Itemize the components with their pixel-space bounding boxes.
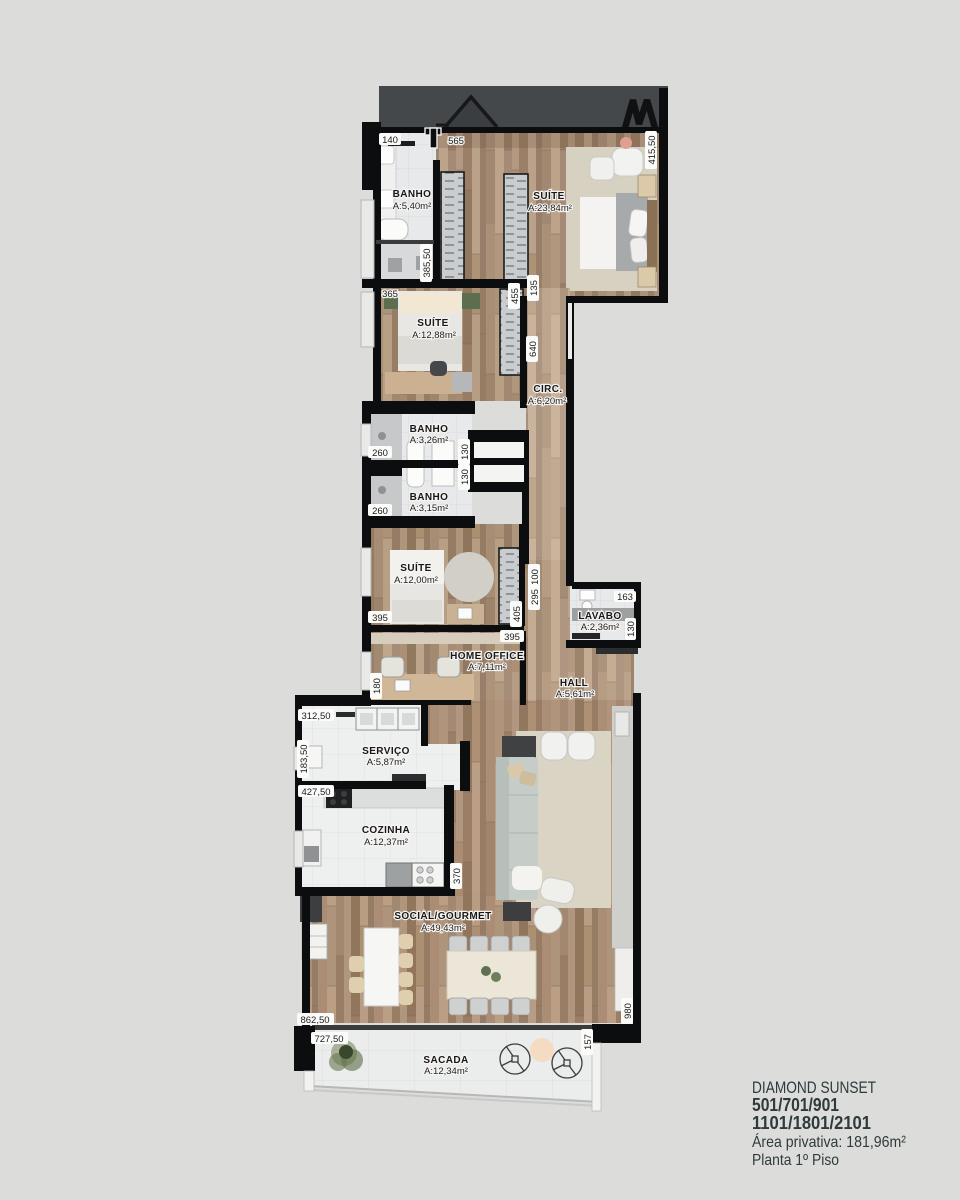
svg-text:385,50: 385,50 <box>422 248 433 277</box>
svg-text:135: 135 <box>529 280 540 296</box>
svg-text:A:12,37m²: A:12,37m² <box>364 837 408 848</box>
svg-text:183,50: 183,50 <box>299 744 310 773</box>
svg-text:SOCIAL/GOURMET: SOCIAL/GOURMET <box>394 911 491 922</box>
svg-text:SACADA: SACADA <box>423 1055 468 1066</box>
svg-text:180: 180 <box>372 678 383 694</box>
svg-text:A:23,84m²: A:23,84m² <box>528 203 572 214</box>
svg-text:370: 370 <box>452 868 463 884</box>
svg-text:HOME OFFICE: HOME OFFICE <box>450 651 524 662</box>
svg-text:862,50: 862,50 <box>300 1015 329 1026</box>
svg-text:A:12,34m²: A:12,34m² <box>424 1066 468 1077</box>
svg-text:A:5,61m²: A:5,61m² <box>556 689 595 700</box>
svg-text:130: 130 <box>626 621 637 637</box>
svg-text:A:3,15m²: A:3,15m² <box>410 503 449 514</box>
svg-text:A:49,43m²: A:49,43m² <box>421 923 465 934</box>
svg-text:LAVABO: LAVABO <box>578 611 621 622</box>
svg-text:260: 260 <box>372 448 388 459</box>
svg-text:A:6,20m²: A:6,20m² <box>528 396 567 407</box>
svg-text:295: 295 <box>530 589 541 605</box>
svg-text:405: 405 <box>512 606 523 622</box>
svg-text:SUÍTE: SUÍTE <box>400 561 431 574</box>
svg-text:BANHO: BANHO <box>410 424 449 435</box>
svg-text:565: 565 <box>448 136 464 147</box>
svg-text:640: 640 <box>528 341 539 357</box>
svg-text:HALL: HALL <box>560 678 588 689</box>
svg-text:395: 395 <box>504 632 520 643</box>
svg-text:980: 980 <box>623 1003 634 1019</box>
svg-text:163: 163 <box>617 592 633 603</box>
svg-text:Área privativa: 181,96m²: Área privativa: 181,96m² <box>752 1132 907 1151</box>
svg-text:395: 395 <box>372 613 388 624</box>
svg-text:Planta 1º Piso: Planta 1º Piso <box>752 1152 839 1169</box>
svg-text:140: 140 <box>382 135 398 146</box>
svg-text:SERVIÇO: SERVIÇO <box>362 746 410 757</box>
svg-text:1101/1801/2101: 1101/1801/2101 <box>752 1112 871 1133</box>
svg-text:312,50: 312,50 <box>301 711 330 722</box>
svg-text:727,50: 727,50 <box>314 1034 343 1045</box>
svg-text:SUÍTE: SUÍTE <box>417 316 448 329</box>
svg-text:A:12,88m²: A:12,88m² <box>412 330 456 341</box>
svg-text:BANHO: BANHO <box>410 492 449 503</box>
svg-text:130: 130 <box>460 469 471 485</box>
svg-text:A:5,40m²: A:5,40m² <box>393 201 432 212</box>
svg-text:455: 455 <box>510 288 521 304</box>
svg-text:A:2,36m²: A:2,36m² <box>581 622 620 633</box>
svg-text:BANHO: BANHO <box>393 189 432 200</box>
svg-text:365: 365 <box>382 289 398 300</box>
svg-text:CIRC.: CIRC. <box>533 384 562 395</box>
svg-text:260: 260 <box>372 506 388 517</box>
svg-text:A:7,11m²: A:7,11m² <box>468 662 506 673</box>
svg-text:100: 100 <box>530 569 541 585</box>
svg-text:A:3,26m²: A:3,26m² <box>410 435 449 446</box>
svg-text:SUÍTE: SUÍTE <box>533 189 564 202</box>
svg-text:A:12,00m²: A:12,00m² <box>394 575 438 586</box>
svg-text:A:5,87m²: A:5,87m² <box>367 757 406 768</box>
svg-text:157: 157 <box>583 1034 594 1050</box>
svg-text:130: 130 <box>460 444 471 460</box>
svg-text:427,50: 427,50 <box>301 787 330 798</box>
svg-text:COZINHA: COZINHA <box>362 825 410 836</box>
svg-text:415,50: 415,50 <box>647 135 658 164</box>
